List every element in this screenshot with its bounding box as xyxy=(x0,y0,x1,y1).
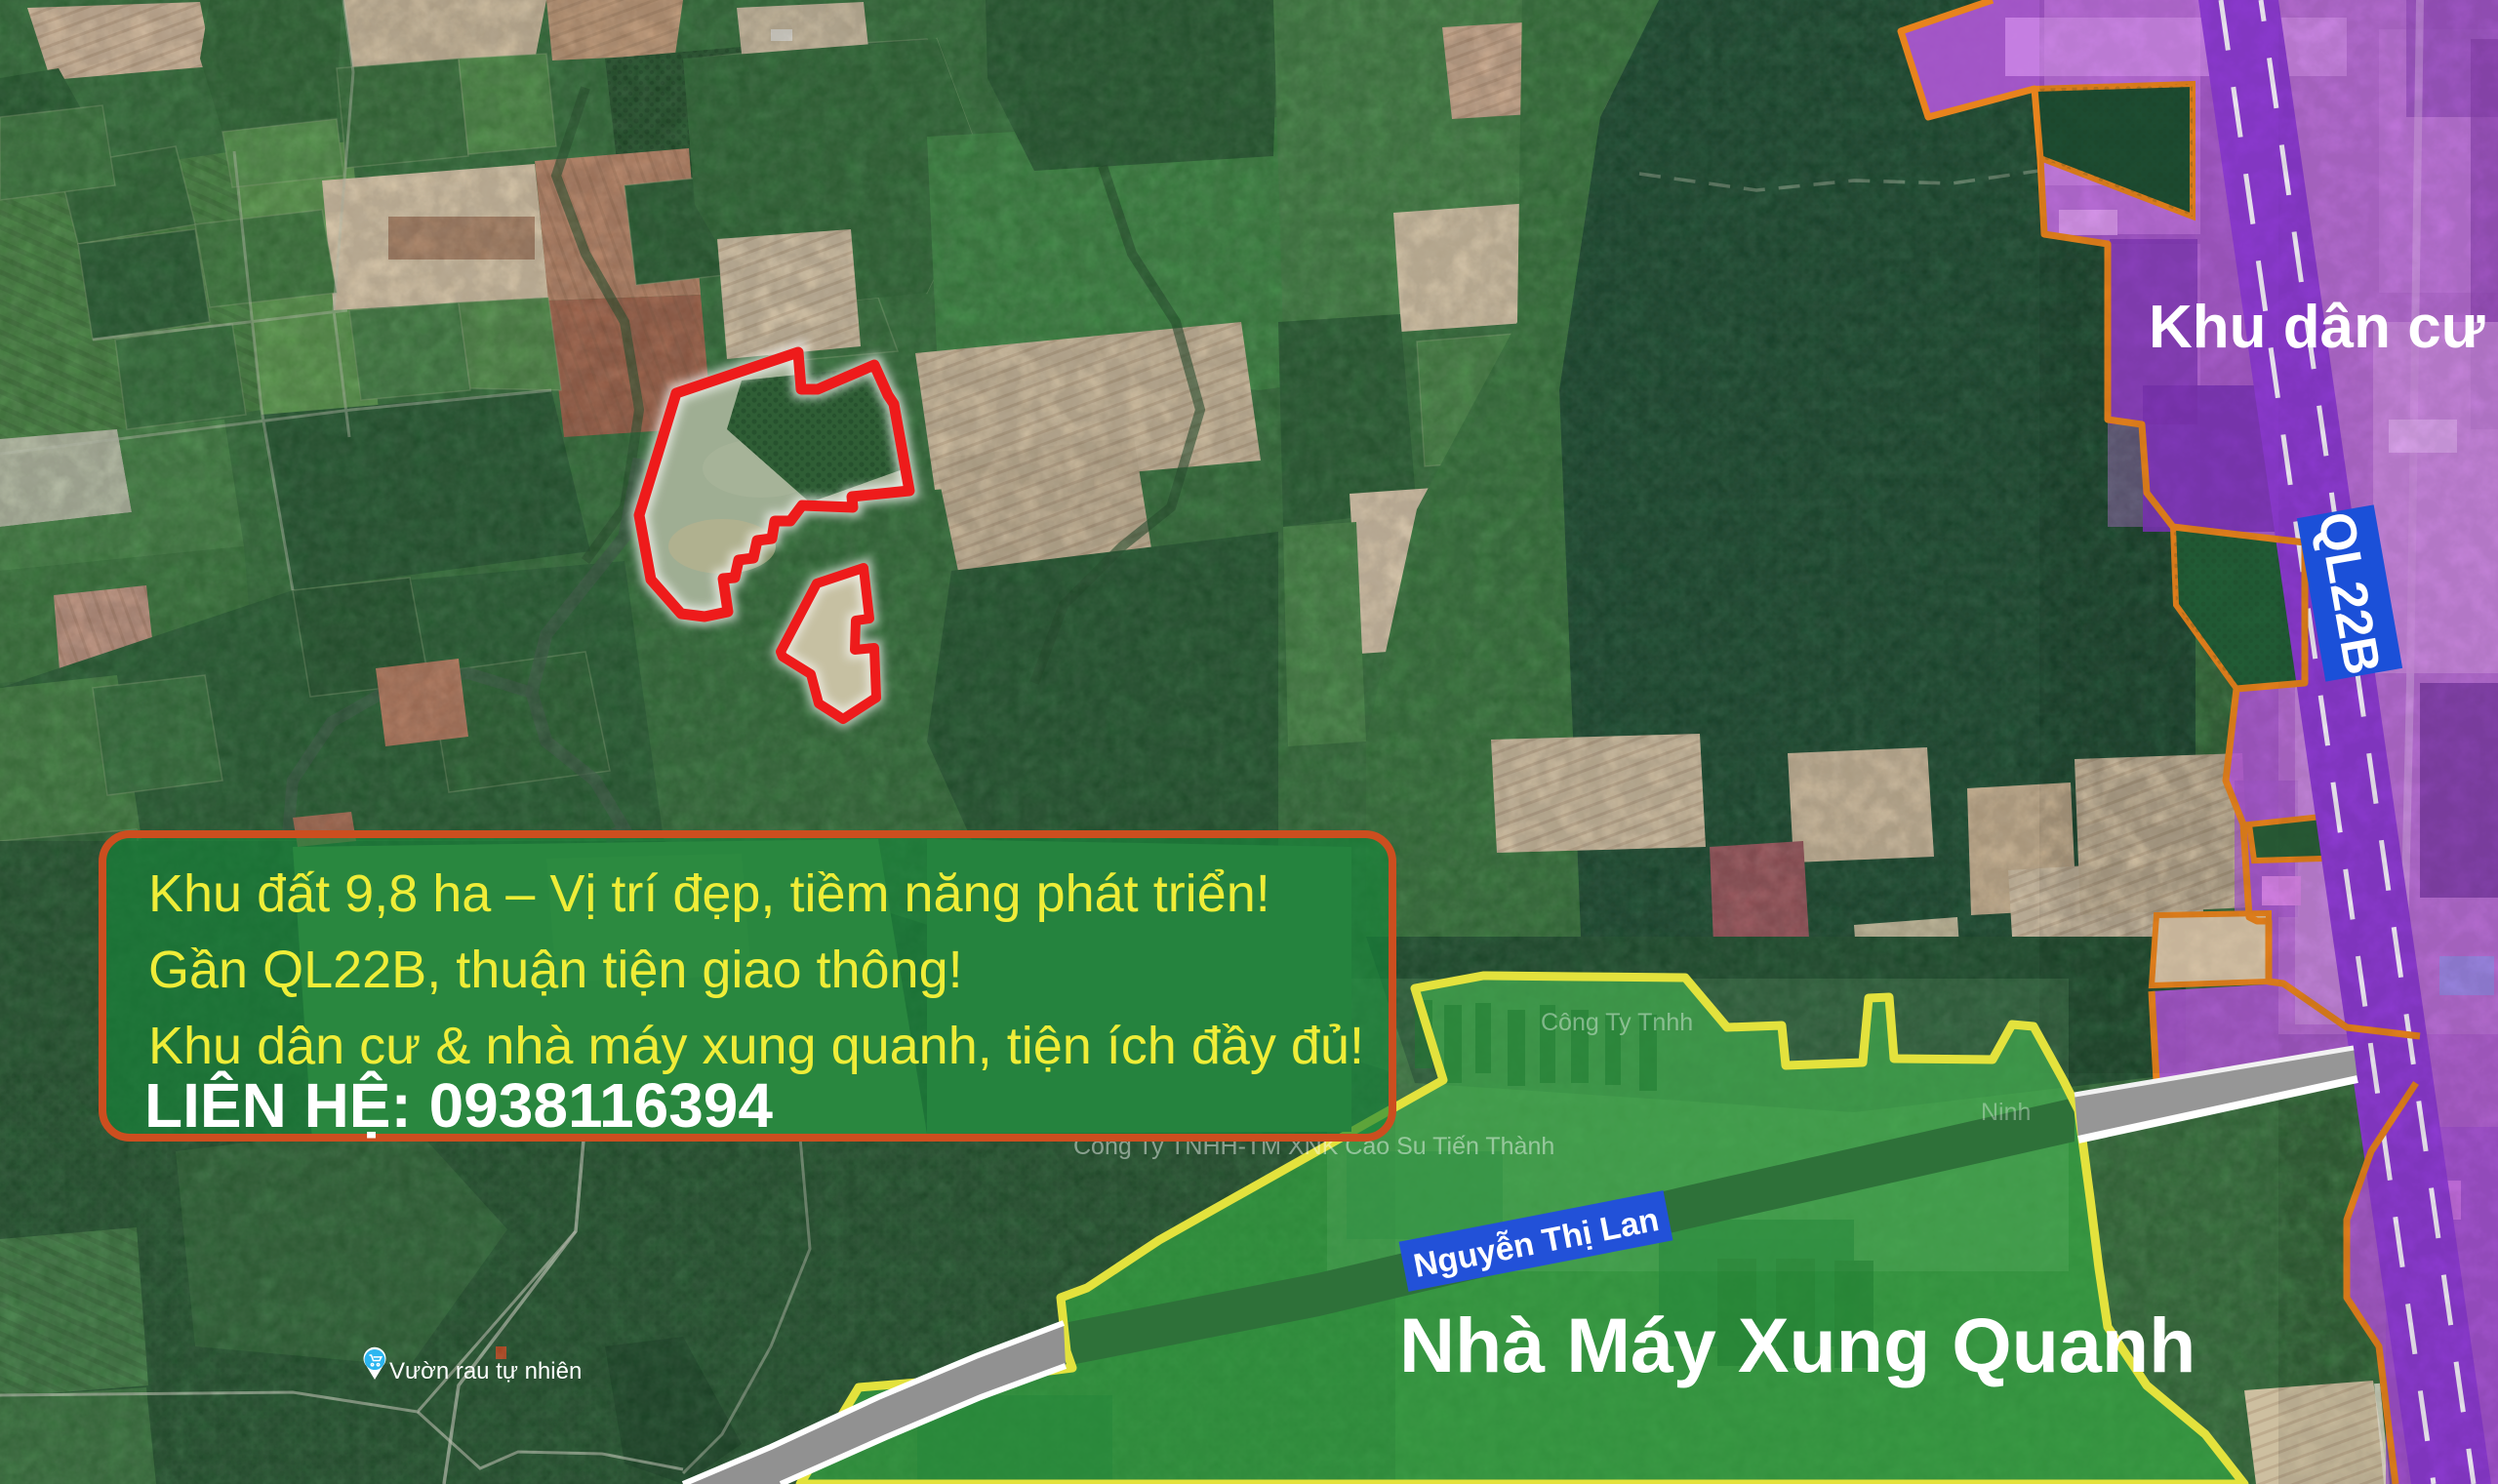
svg-text:Công Ty Tnhh: Công Ty Tnhh xyxy=(1541,1009,1693,1036)
svg-text:Vườn rau tự nhiên: Vườn rau tự nhiên xyxy=(389,1358,582,1384)
svg-text:Ninh: Ninh xyxy=(1981,1099,2031,1126)
svg-text:Khu dân cư & nhà máy xung quan: Khu dân cư & nhà máy xung quanh, tiện íc… xyxy=(148,1017,1364,1075)
svg-text:Nhà Máy Xung Quanh: Nhà Máy Xung Quanh xyxy=(1399,1302,2196,1388)
svg-text:LIÊN HỆ: 0938116394: LIÊN HỆ: 0938116394 xyxy=(144,1069,773,1141)
svg-text:Gần QL22B, thuận tiện giao thô: Gần QL22B, thuận tiện giao thông! xyxy=(148,941,963,999)
svg-text:Khu đất 9,8 ha – Vị trí đẹp, t: Khu đất 9,8 ha – Vị trí đẹp, tiềm năng p… xyxy=(148,864,1270,923)
svg-text:Khu dân cư: Khu dân cư xyxy=(2149,294,2485,361)
